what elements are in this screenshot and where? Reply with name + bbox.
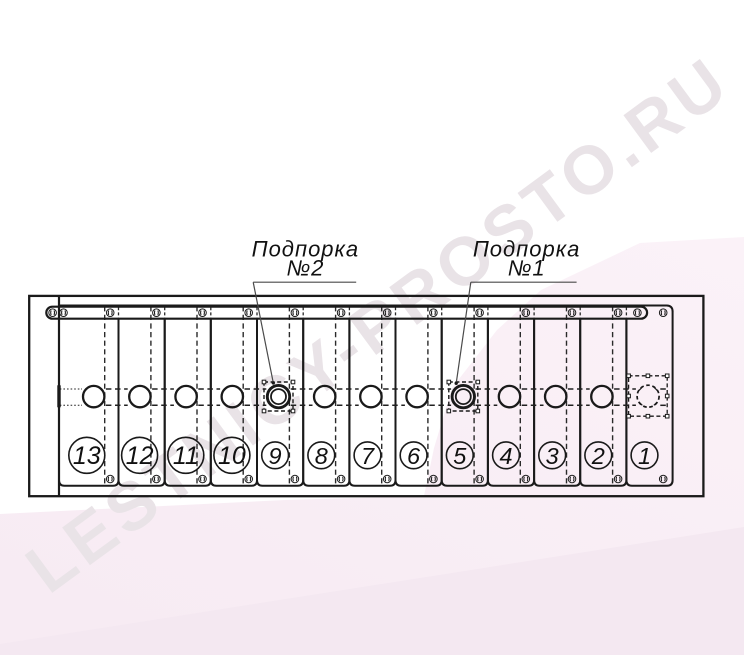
svg-text:4: 4 — [499, 443, 512, 469]
svg-text:№1: №1 — [508, 255, 546, 280]
svg-text:1: 1 — [638, 443, 651, 469]
svg-text:2: 2 — [591, 443, 605, 469]
svg-text:7: 7 — [361, 443, 375, 469]
svg-text:13: 13 — [73, 442, 101, 470]
svg-text:3: 3 — [546, 443, 559, 469]
svg-text:11: 11 — [173, 442, 199, 470]
svg-text:12: 12 — [126, 442, 154, 470]
svg-text:№2: №2 — [286, 255, 324, 280]
svg-text:10: 10 — [218, 442, 246, 470]
svg-text:8: 8 — [315, 443, 328, 469]
svg-text:6: 6 — [407, 443, 421, 469]
svg-text:9: 9 — [269, 443, 282, 469]
svg-text:5: 5 — [453, 443, 467, 469]
